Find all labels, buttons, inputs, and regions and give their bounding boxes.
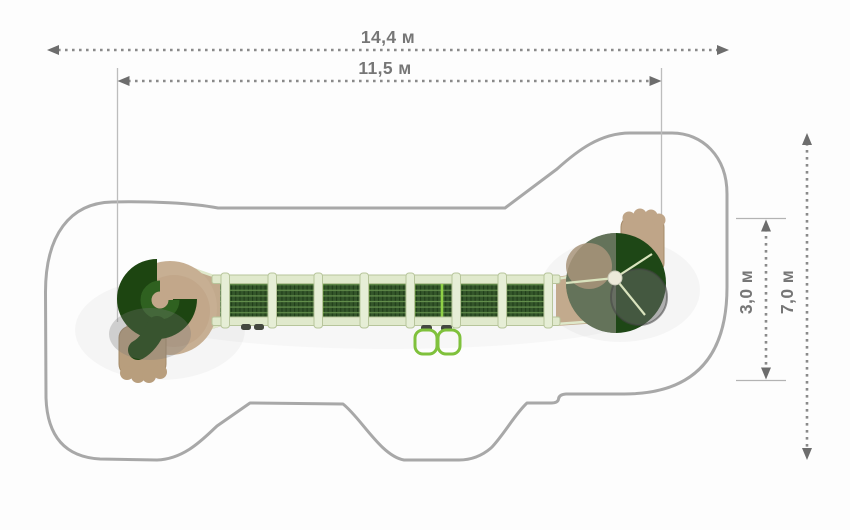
arrow-up-icon <box>761 220 771 232</box>
walkway-rail-top <box>212 275 560 284</box>
dimension-label-equipment-zone-width: 3,0 м <box>736 270 756 314</box>
arrow-left-icon <box>118 76 130 86</box>
dimension-label-total-length: 14,4 м <box>361 27 415 47</box>
dimension-total-length: 14,4 м <box>47 27 729 55</box>
dimension-total-width: 7,0 м <box>777 133 812 460</box>
plan-canvas: 14,4 м 11,5 м 3,0 м 7,0 м <box>0 0 850 530</box>
walkway-rail-bottom <box>212 317 560 326</box>
arrow-up-icon <box>802 133 812 145</box>
dimension-label-total-width: 7,0 м <box>777 270 797 314</box>
arrow-left-icon <box>47 45 59 55</box>
right-tower <box>556 209 667 334</box>
arrow-right-icon <box>650 76 662 86</box>
left-dome-cover <box>109 308 191 360</box>
arrow-right-icon <box>717 45 729 55</box>
playground-plan-view: 14,4 м 11,5 м 3,0 м 7,0 м <box>0 0 850 530</box>
dimension-equipment-length: 11,5 м <box>118 58 662 86</box>
arrow-down-icon <box>761 368 771 380</box>
arrow-down-icon <box>802 448 812 460</box>
dimension-label-equipment-length: 11,5 м <box>358 58 411 78</box>
